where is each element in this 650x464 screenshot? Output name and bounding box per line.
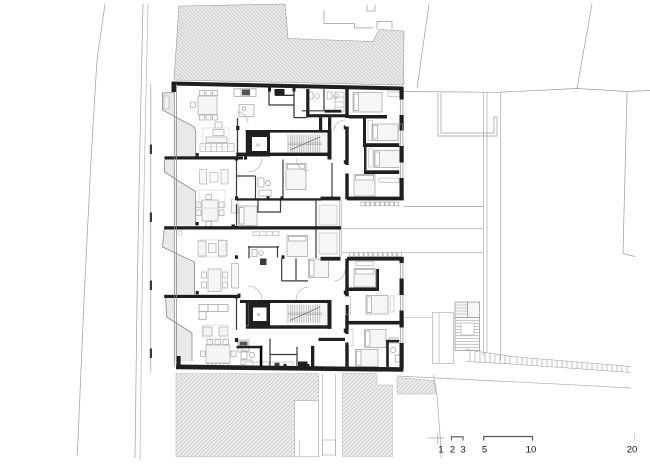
svg-text:20: 20 — [627, 445, 638, 456]
svg-text:5: 5 — [482, 445, 487, 456]
svg-text:1: 1 — [438, 445, 443, 456]
svg-text:2: 2 — [450, 445, 455, 456]
svg-text:3: 3 — [460, 445, 465, 456]
svg-text:10: 10 — [526, 445, 537, 456]
